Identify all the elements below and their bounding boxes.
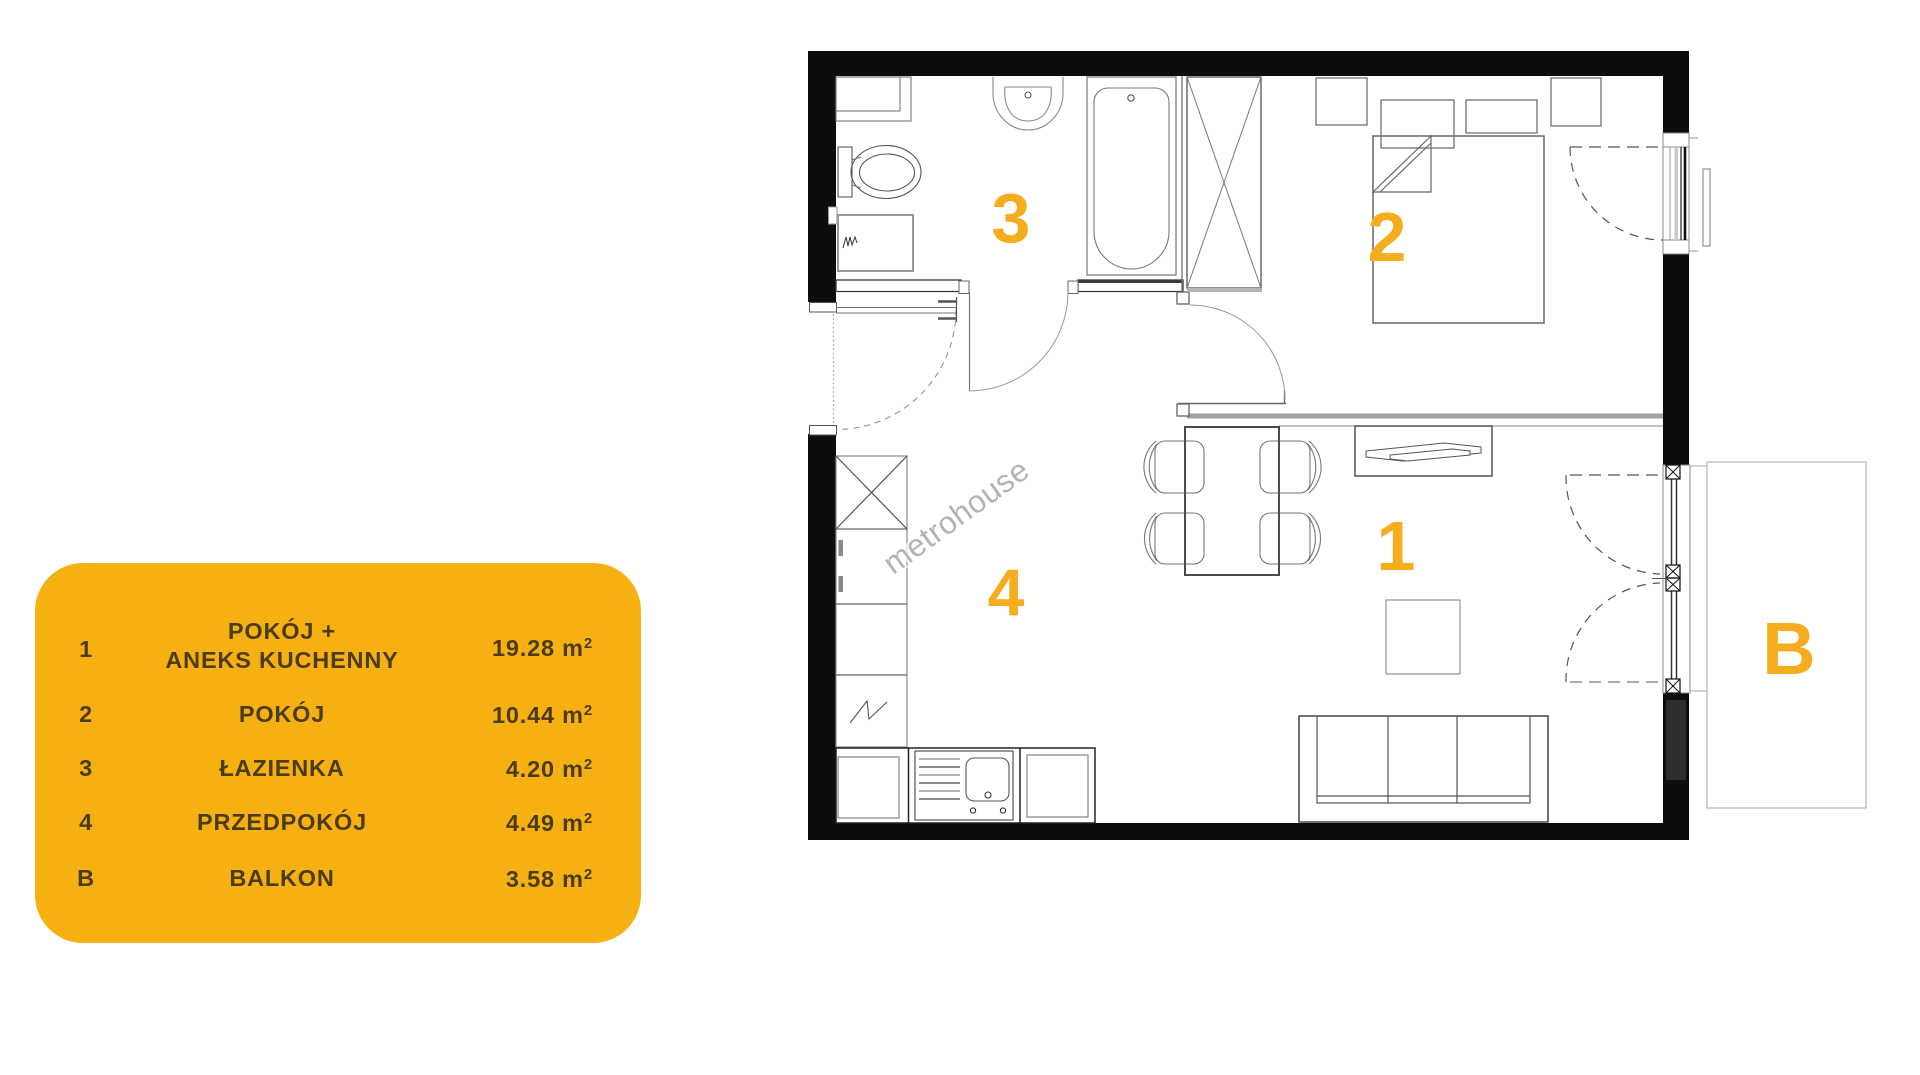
svg-text:10.44 m2: 10.44 m2 xyxy=(492,702,593,728)
svg-text:B: B xyxy=(1762,607,1815,690)
svg-text:PRZEDPOKÓJ: PRZEDPOKÓJ xyxy=(197,808,367,835)
svg-text:3: 3 xyxy=(79,755,93,781)
svg-text:19.28 m2: 19.28 m2 xyxy=(492,635,593,661)
svg-text:1: 1 xyxy=(1377,507,1416,585)
svg-text:ŁAZIENKA: ŁAZIENKA xyxy=(219,755,344,781)
svg-text:1: 1 xyxy=(79,636,93,662)
svg-text:4: 4 xyxy=(988,555,1025,629)
svg-text:B: B xyxy=(77,865,95,891)
svg-text:POKÓJ: POKÓJ xyxy=(239,700,325,727)
svg-text:ANEKS KUCHENNY: ANEKS KUCHENNY xyxy=(165,647,398,673)
svg-text:POKÓJ +: POKÓJ + xyxy=(228,617,336,644)
svg-text:BALKON: BALKON xyxy=(229,865,334,891)
svg-text:4: 4 xyxy=(79,809,93,835)
svg-text:3: 3 xyxy=(992,179,1031,257)
svg-text:2: 2 xyxy=(1368,198,1407,276)
svg-text:3.58 m2: 3.58 m2 xyxy=(506,866,593,892)
svg-text:4.20 m2: 4.20 m2 xyxy=(506,756,593,782)
svg-text:2: 2 xyxy=(79,701,93,727)
svg-text:4.49 m2: 4.49 m2 xyxy=(506,810,593,836)
